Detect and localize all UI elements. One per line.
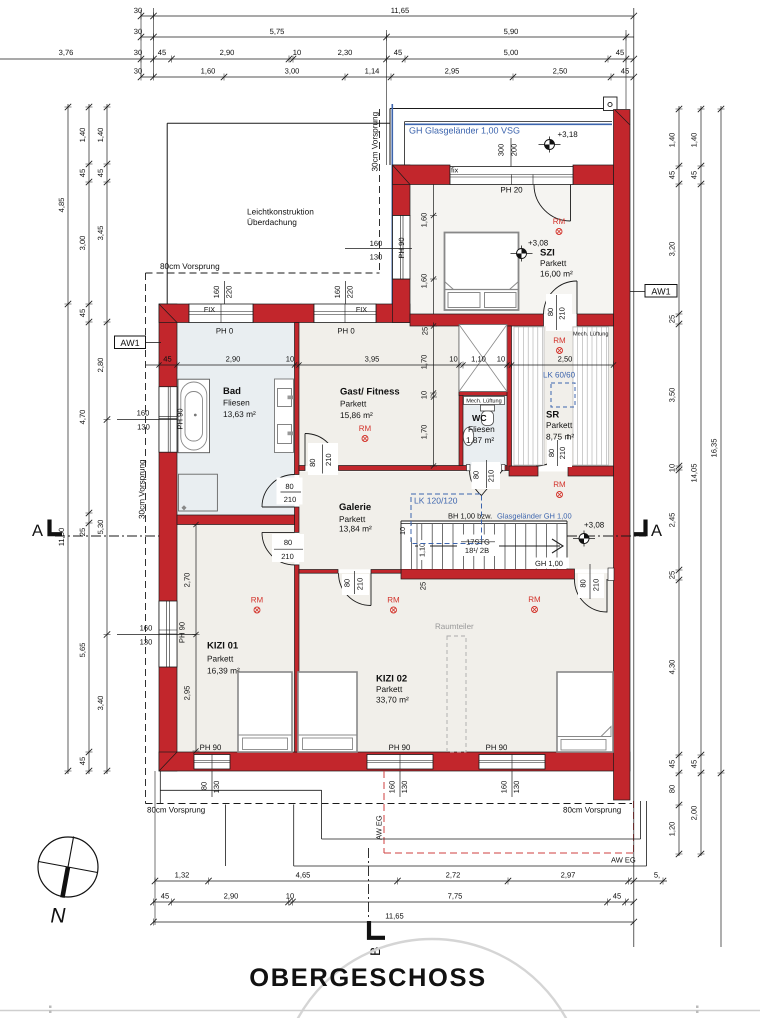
svg-text:+3,18: +3,18 [558,130,579,139]
svg-text:300: 300 [497,144,506,157]
svg-text:80: 80 [200,782,209,790]
svg-text:2,50: 2,50 [553,67,568,76]
svg-text:2,70: 2,70 [183,573,192,588]
svg-text:4,70: 4,70 [78,410,87,425]
svg-text:AW EG: AW EG [375,815,384,840]
svg-text:80: 80 [343,579,352,587]
svg-text:10: 10 [398,527,407,535]
svg-text:7,75: 7,75 [448,892,463,901]
svg-text:3,20: 3,20 [668,242,677,257]
svg-text:30cm Vorsprung: 30cm Vorsprung [138,459,147,519]
svg-text:30: 30 [134,67,142,76]
svg-text:2,90: 2,90 [224,892,239,901]
svg-text:PH 90: PH 90 [200,743,222,752]
svg-text:130: 130 [140,638,153,647]
svg-text:11,65: 11,65 [391,6,409,15]
svg-text:80: 80 [579,579,588,587]
svg-text:80cm Vorsprung: 80cm Vorsprung [147,806,205,815]
svg-text:Mech. Lüftung: Mech. Lüftung [466,397,501,404]
svg-text:Galerie: Galerie [339,502,371,513]
svg-text:1,10: 1,10 [471,355,486,364]
svg-text:80: 80 [285,482,293,491]
svg-text:210: 210 [592,579,601,592]
svg-text:210: 210 [284,495,297,504]
svg-text:160: 160 [388,781,397,794]
svg-text:2,80: 2,80 [96,358,105,373]
svg-text:130: 130 [400,781,409,794]
svg-text:RM: RM [528,595,541,604]
svg-text:160: 160 [500,781,509,794]
svg-text:1,20: 1,20 [668,822,677,837]
svg-text:Parkett: Parkett [540,258,567,268]
svg-text:OBERGESCHOSS: OBERGESCHOSS [249,964,486,992]
svg-text:4,65: 4,65 [296,871,311,880]
svg-text:PH 90: PH 90 [397,237,406,258]
svg-text:80cm Vorsprung: 80cm Vorsprung [160,262,220,271]
svg-text:80: 80 [284,538,292,547]
svg-text:45: 45 [158,48,166,57]
svg-text:45: 45 [394,48,402,57]
svg-text:1,32: 1,32 [175,871,190,880]
svg-text:3,40: 3,40 [96,696,105,711]
svg-text:BH 1,00 bzw.: BH 1,00 bzw. [448,512,492,521]
svg-text:1,40: 1,40 [690,133,699,148]
svg-text:FIX: FIX [356,305,367,314]
svg-text:2,97: 2,97 [561,871,576,880]
svg-text:PH 0: PH 0 [216,327,234,336]
svg-text:30: 30 [134,27,142,36]
svg-text:Überdachung: Überdachung [247,217,297,227]
svg-text:Raumteiler: Raumteiler [435,622,474,631]
svg-text:3,45: 3,45 [96,226,105,241]
svg-text:10: 10 [449,355,457,364]
svg-text:2,50: 2,50 [558,355,573,364]
svg-text:25: 25 [668,571,677,579]
svg-text:A: A [651,522,662,540]
svg-text:130: 130 [370,253,383,262]
svg-text:2,95: 2,95 [183,686,192,701]
svg-text:210: 210 [558,447,567,460]
svg-text:160: 160 [212,286,221,299]
svg-text:3,50: 3,50 [668,388,677,403]
svg-text:1,60: 1,60 [420,213,429,228]
svg-text:200: 200 [510,144,519,157]
svg-text:LK 120/120: LK 120/120 [414,496,458,506]
svg-text:1,70: 1,70 [420,355,429,370]
svg-text:GH Glasgeländer 1,00 VSG: GH Glasgeländer 1,00 VSG [409,126,520,136]
svg-text:130: 130 [137,423,150,432]
svg-text:10: 10 [420,391,429,399]
svg-text:16,35: 16,35 [710,438,719,457]
svg-text:13,63 m²: 13,63 m² [223,409,256,419]
svg-text:3,00: 3,00 [78,236,87,251]
svg-text:16,00 m²: 16,00 m² [540,269,573,279]
svg-text:PH 90: PH 90 [486,743,508,752]
svg-text:SR: SR [546,410,559,421]
svg-text:Fliesen: Fliesen [468,424,495,434]
svg-text:10: 10 [286,355,294,364]
svg-text:14,05: 14,05 [690,463,699,482]
svg-text:A: A [32,522,43,540]
svg-text:130: 130 [212,781,221,794]
svg-text:30: 30 [134,48,142,57]
svg-text:RM: RM [387,596,400,605]
svg-text:45: 45 [78,169,87,177]
svg-text:PH 0: PH 0 [337,327,355,336]
svg-text:Fliesen: Fliesen [223,398,250,408]
svg-text:15,86 m²: 15,86 m² [340,410,373,420]
svg-text:AW1: AW1 [651,286,670,296]
svg-text:1,60: 1,60 [420,274,429,289]
svg-text:RM: RM [553,480,566,489]
svg-text:RM: RM [553,217,566,226]
svg-text:80: 80 [308,459,317,467]
svg-text:FIX: FIX [204,305,215,314]
svg-text:210: 210 [324,453,333,466]
svg-text:80: 80 [547,449,556,457]
svg-text:220: 220 [225,286,234,299]
svg-text:210: 210 [281,552,294,561]
svg-text:80: 80 [472,471,481,479]
svg-text:5,90: 5,90 [504,27,519,36]
svg-text:1,14: 1,14 [365,67,380,76]
svg-text:210: 210 [558,307,567,320]
svg-text:45: 45 [668,760,677,768]
svg-text:45: 45 [616,48,624,57]
svg-text:WC: WC [472,413,487,423]
svg-text:LK 60/60: LK 60/60 [543,371,576,380]
svg-text:10: 10 [293,48,301,57]
svg-text:160: 160 [370,239,383,248]
svg-text:5,75: 5,75 [270,27,285,36]
svg-text:11,50: 11,50 [57,528,66,546]
svg-text:13,84 m²: 13,84 m² [339,524,372,534]
svg-text:Parkett: Parkett [339,514,366,524]
svg-text:Parkett: Parkett [340,399,367,409]
svg-text:80: 80 [546,308,555,316]
svg-text:RM: RM [359,424,372,433]
svg-text:PH 90: PH 90 [178,622,187,643]
svg-text:5,65: 5,65 [78,643,87,658]
svg-text:4,85: 4,85 [57,198,66,213]
svg-text:2,30: 2,30 [338,48,353,57]
svg-text:1,60: 1,60 [201,67,216,76]
svg-text:5,30: 5,30 [96,520,105,535]
svg-text:PH 90: PH 90 [176,408,185,429]
svg-text:2,95: 2,95 [445,67,460,76]
svg-text:2,72: 2,72 [446,871,461,880]
svg-text:Parkett: Parkett [546,420,573,430]
svg-text:Glasgeländer GH 1,00: Glasgeländer GH 1,00 [497,512,572,521]
svg-text:1,40: 1,40 [78,128,87,143]
svg-text:RM: RM [553,336,566,345]
svg-text:160: 160 [333,286,342,299]
svg-text:fix: fix [451,166,459,175]
svg-text:25: 25 [78,528,87,536]
svg-text:220: 220 [346,286,355,299]
svg-text:4,30: 4,30 [668,660,677,675]
svg-text:Mech. Lüftung: Mech. Lüftung [573,331,608,338]
svg-text:45: 45 [161,892,169,901]
svg-text:25: 25 [419,582,428,590]
svg-text:30cm Vorsprung: 30cm Vorsprung [371,111,380,171]
svg-text:Parkett: Parkett [207,654,234,664]
svg-text:160: 160 [137,409,150,418]
svg-text:2,00: 2,00 [690,806,699,821]
svg-text:45: 45 [78,309,87,317]
svg-text:N: N [50,905,66,928]
svg-text:1,10: 1,10 [418,543,427,557]
svg-text:45: 45 [690,171,699,179]
svg-text:10: 10 [497,355,505,364]
svg-text:45: 45 [690,760,699,768]
svg-text:KIZI 01: KIZI 01 [207,641,239,652]
svg-text:AW EG: AW EG [611,856,636,865]
svg-text:80cm Vorsprung: 80cm Vorsprung [563,806,621,815]
svg-text:PH 20: PH 20 [500,186,523,195]
svg-text:2,90: 2,90 [220,48,235,57]
svg-text:+3,08: +3,08 [584,521,605,530]
svg-text:1,70: 1,70 [420,425,429,440]
svg-text:5,: 5, [654,871,660,880]
svg-text:Leichtkonstruktion: Leichtkonstruktion [247,207,314,217]
svg-text:18¹/ 2B: 18¹/ 2B [465,546,489,555]
svg-text:KIZI 02: KIZI 02 [376,674,407,685]
svg-text:2,45: 2,45 [668,513,677,528]
svg-text:GH 1,00: GH 1,00 [535,559,563,568]
svg-text:45: 45 [78,757,87,765]
svg-text:45: 45 [621,67,629,76]
svg-text:210: 210 [487,470,496,483]
svg-text:1,40: 1,40 [668,133,677,148]
svg-text:2,90: 2,90 [226,355,241,364]
svg-text:8,75 m²: 8,75 m² [546,432,574,442]
svg-text:5,00: 5,00 [504,48,519,57]
svg-text:AW1: AW1 [120,338,139,348]
svg-text:Bad: Bad [223,386,241,397]
svg-text:3,76: 3,76 [59,48,74,57]
svg-text:3,95: 3,95 [365,355,380,364]
svg-text:RM: RM [251,596,264,605]
svg-text:25: 25 [668,315,677,323]
svg-text:PH 90: PH 90 [389,743,411,752]
svg-text:130: 130 [512,781,521,794]
svg-text:SZI: SZI [540,248,555,259]
svg-text:+3,08: +3,08 [528,239,549,248]
svg-text:33,70 m²: 33,70 m² [376,695,409,705]
svg-text:45: 45 [163,355,171,364]
svg-text:25: 25 [421,327,430,335]
svg-text:Parkett: Parkett [376,684,403,694]
svg-text:30: 30 [134,6,142,15]
svg-text:1,87 m²: 1,87 m² [466,435,494,445]
svg-text:10: 10 [668,464,677,472]
svg-text:210: 210 [356,578,365,591]
svg-text:45: 45 [96,169,105,177]
svg-text:3,00: 3,00 [285,67,300,76]
svg-text:Gast/ Fitness: Gast/ Fitness [340,387,400,398]
svg-text:160: 160 [140,624,153,633]
svg-text:1,40: 1,40 [96,128,105,143]
svg-text:16,39 m²: 16,39 m² [207,666,240,676]
svg-text:80: 80 [668,785,677,793]
svg-text:45: 45 [668,171,677,179]
svg-text:45: 45 [613,892,621,901]
svg-text:10: 10 [286,892,294,901]
svg-text:11,65: 11,65 [385,912,403,921]
